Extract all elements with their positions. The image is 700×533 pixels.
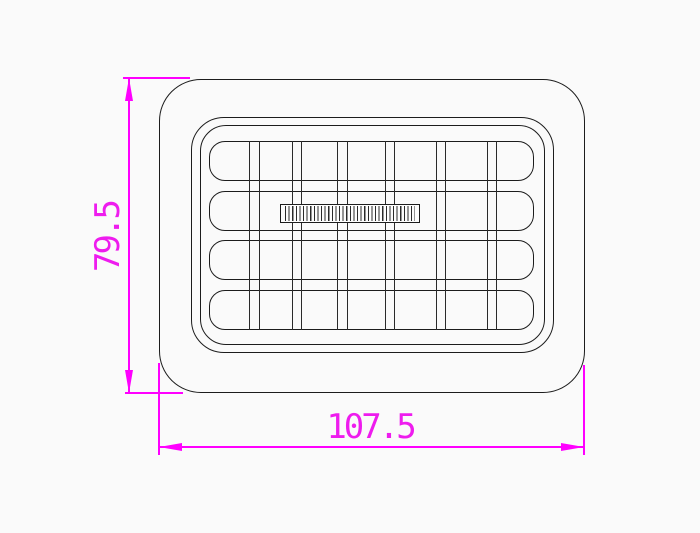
width-dimension-label: 107.5	[300, 410, 440, 444]
thumbwheel-knurl-texture	[285, 206, 415, 221]
technical-drawing-canvas: 79.5 107.5	[0, 0, 700, 533]
grille-rib-line	[249, 141, 250, 330]
width-extension-line-left	[158, 363, 159, 455]
grille-rib-line	[445, 141, 446, 330]
grille-rib-line	[259, 141, 260, 330]
grille-rib-line	[385, 141, 386, 330]
grille-rib-line	[487, 141, 488, 330]
width-dimension-arrow-right	[561, 443, 584, 451]
height-dimension-line	[128, 78, 129, 393]
height-dimension-arrow-down	[125, 370, 133, 393]
width-extension-line-right	[583, 365, 584, 455]
height-dimension-arrow-up	[125, 78, 133, 101]
width-dimension-arrow-left	[159, 443, 182, 451]
height-extension-line-bottom	[125, 392, 183, 393]
height-dimension-label: 79.5	[91, 175, 125, 299]
grille-rib-line	[436, 141, 437, 330]
grille-rib-line	[292, 141, 293, 330]
grille-rib-line	[301, 141, 302, 330]
grille-rib-line	[337, 141, 338, 330]
grille-rib-line	[394, 141, 395, 330]
grille-rib-line	[496, 141, 497, 330]
thumbwheel-slider	[280, 204, 420, 223]
grille-rib-line	[347, 141, 348, 330]
